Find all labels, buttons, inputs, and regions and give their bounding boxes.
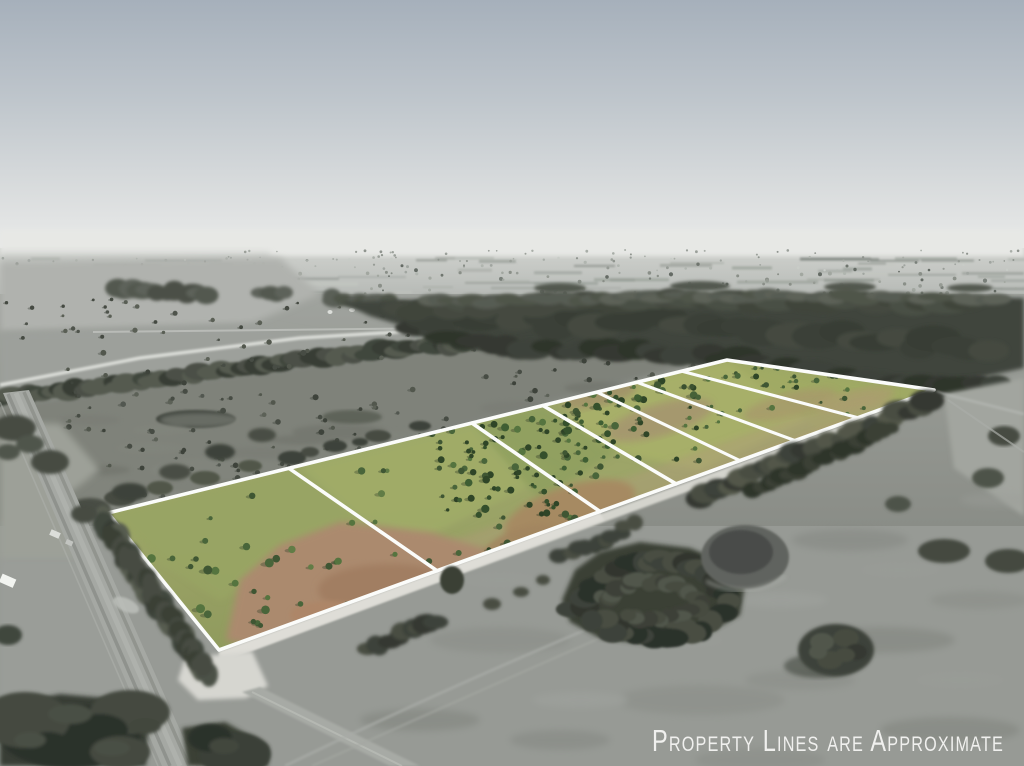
svg-text:Property Lines are Approximate: Property Lines are Approximate	[652, 724, 1004, 758]
